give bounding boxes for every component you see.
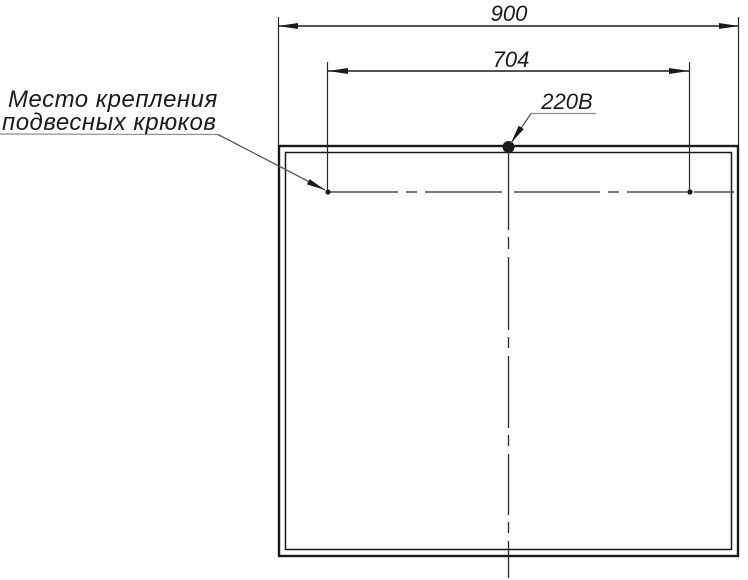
- hook-callout: Место крепления подвесных крюков: [0, 86, 325, 190]
- hook-callout-underline: [0, 134, 218, 135]
- hook-point-left: [325, 189, 330, 194]
- arrowhead-right-icon: [669, 68, 689, 74]
- arrowhead-left-icon: [278, 23, 298, 29]
- leader-arrowhead-icon: [511, 126, 524, 143]
- technical-drawing-mirror-mounting: 900 704 220В Место креп: [0, 0, 748, 580]
- arrowhead-right-icon: [719, 23, 739, 29]
- dimension-overall-width-value: 900: [491, 1, 528, 26]
- hook-point-right: [687, 189, 692, 194]
- dimension-hook-spacing-value: 704: [493, 47, 530, 72]
- drawing-canvas: 900 704 220В Место креп: [0, 0, 748, 580]
- hook-mounting-centerline: [325, 189, 734, 194]
- leader-arrowhead-icon: [307, 179, 325, 190]
- hook-callout-line2: подвесных крюков: [2, 109, 216, 136]
- arrowhead-left-icon: [328, 68, 348, 74]
- voltage-callout: 220В: [503, 89, 597, 153]
- voltage-label: 220В: [540, 89, 592, 114]
- power-connection-point: [503, 141, 515, 153]
